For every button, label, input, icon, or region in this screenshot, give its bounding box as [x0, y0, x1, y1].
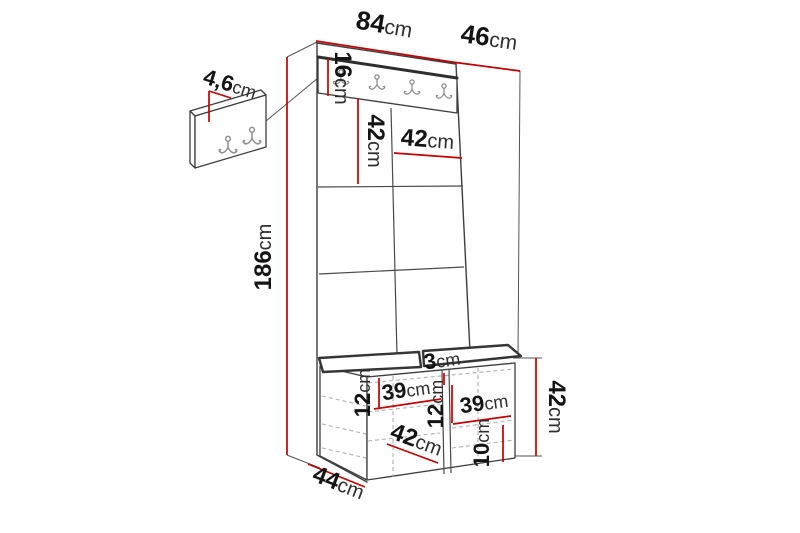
- dim-label-shelf-offset-center: 12cm: [423, 380, 448, 428]
- dim-label-bench-height: 42cm: [543, 380, 570, 433]
- dim-label-rail-height: 16cm: [329, 51, 356, 104]
- wall-panel-side-edge: [190, 111, 195, 168]
- dim-label-top-depth: 46cm: [459, 18, 520, 56]
- dim-line-top-depth: [452, 62, 520, 71]
- dim-label-total-height: 186cm: [250, 224, 277, 291]
- detail-callout-line: [266, 78, 318, 121]
- extension-line-right-wall: [518, 71, 520, 357]
- dim-label-shelf-offset-left: 12cm: [350, 369, 375, 417]
- wall-panel-detail: [190, 90, 266, 168]
- dim-label-tile-height: 42cm: [362, 114, 389, 167]
- furniture-dimension-diagram: 84cm 46cm 186cm 16cm 42cm 42cm 4,6cm 12c…: [0, 0, 800, 533]
- dim-label-bottom-clearance: 10cm: [469, 419, 494, 467]
- dim-label-top-width: 84cm: [354, 5, 415, 44]
- extension-line-top-left: [287, 42, 317, 57]
- diagram-canvas: 84cm 46cm 186cm 16cm 42cm 42cm 4,6cm 12c…: [0, 0, 800, 533]
